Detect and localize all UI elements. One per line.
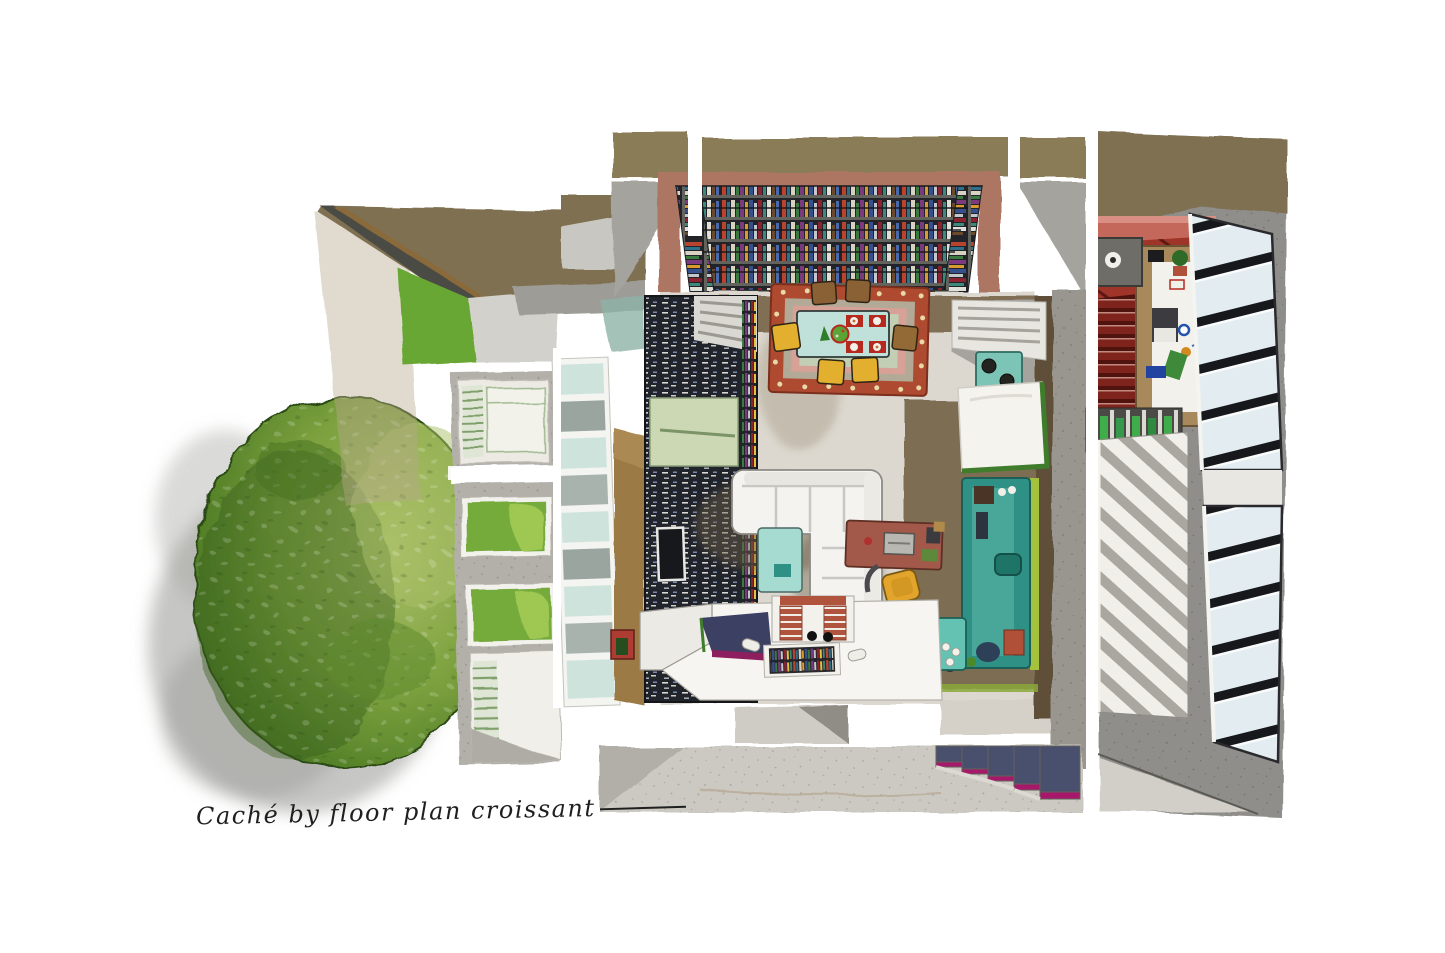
terracotta-pot: [1004, 630, 1024, 655]
coffee-table: [758, 528, 802, 592]
right-wing: [1086, 132, 1288, 818]
library-bookshelf: [676, 186, 982, 292]
daybed: [958, 382, 1047, 471]
skylight-upper: [1190, 214, 1282, 470]
skylight-divider: [1202, 470, 1282, 506]
coffee-table-tray: [774, 564, 791, 577]
glazed-corridor: [552, 357, 620, 707]
bottle: [976, 512, 988, 539]
grass-window-1: [460, 495, 551, 559]
coffee-machine: [974, 486, 994, 504]
salad-bowl: [832, 326, 849, 343]
glass-floor-books: [763, 643, 840, 678]
wing-louver-band: [1098, 432, 1188, 718]
dining-table: [797, 311, 889, 357]
spine-column-upper: [742, 300, 756, 470]
kettle: [976, 642, 1000, 662]
tv-screen: [657, 528, 685, 581]
sink: [995, 554, 1021, 575]
plant: [1172, 250, 1188, 266]
desk: [845, 518, 945, 569]
grass-window-2: [465, 583, 557, 646]
garden-mailbox: [611, 630, 634, 659]
knob: [807, 631, 817, 641]
knob: [823, 632, 833, 642]
facade-top-panel: [458, 379, 550, 465]
mezzanine-platform: [640, 596, 942, 700]
camera: [1148, 250, 1164, 262]
painting-canvas: Caché by floor plan croissant: [0, 0, 1445, 953]
west-facade: [448, 371, 564, 765]
skylight-lower: [1204, 506, 1282, 762]
facade-bottom-panel: [470, 651, 562, 763]
lower-gray-panel: [735, 705, 848, 743]
